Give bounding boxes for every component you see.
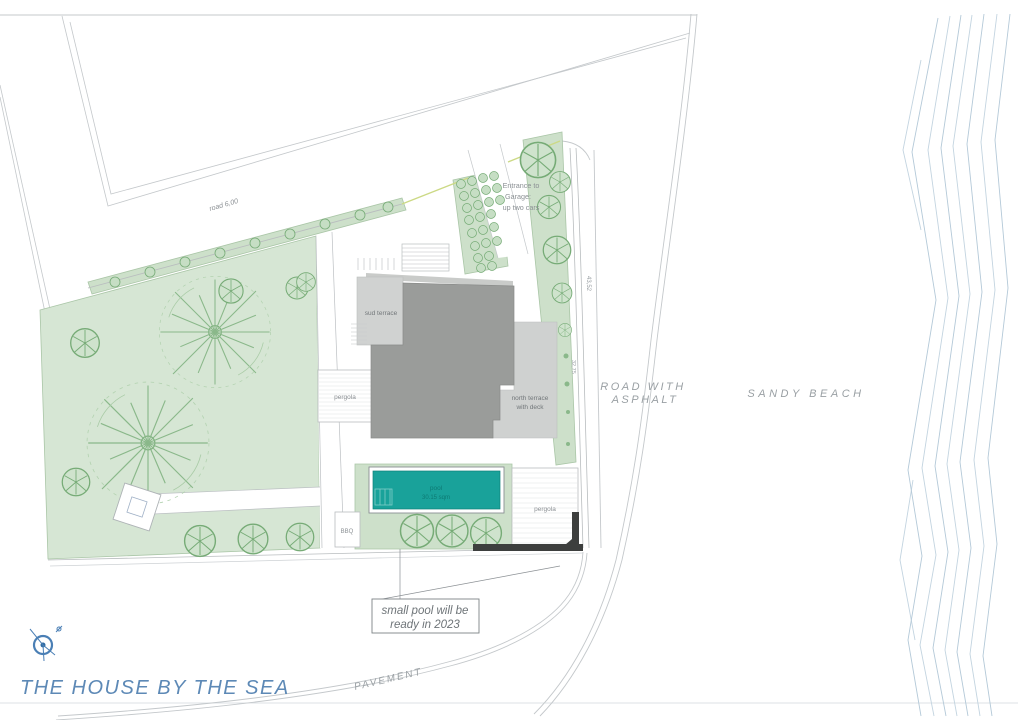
bbq-label: BBQ xyxy=(341,529,354,535)
note-line-1: small pool will be xyxy=(382,605,469,617)
road-asphalt-label-1: ROAD WITH xyxy=(600,381,685,393)
pergola-west-label: pergola xyxy=(334,394,356,401)
sud-terrace-label: sud terrace xyxy=(365,310,398,317)
note-box: small pool will be ready in 2023 xyxy=(372,549,560,633)
north-terrace-label-2: with deck xyxy=(515,404,544,411)
bbq: BBQ xyxy=(335,512,360,547)
sea-contours xyxy=(900,14,1010,716)
compass-icon xyxy=(30,626,62,661)
road-top-label: road 6,00 xyxy=(209,198,239,213)
note-line-2: ready in 2023 xyxy=(390,619,460,631)
pool: pool 30.15 sqm xyxy=(369,467,504,513)
stairs xyxy=(358,244,449,271)
pergola-east: pergola xyxy=(512,468,578,548)
north-terrace-label-1: north terrace xyxy=(512,395,549,402)
pergola-west: pergola xyxy=(318,370,372,422)
dimension-label-2: 32,75 xyxy=(570,360,576,374)
pavement-label: PAVEMENT xyxy=(353,667,423,693)
entrance-label-2: Garage: xyxy=(505,192,531,201)
entrance-label-1: Entrance to xyxy=(503,181,540,190)
road-asphalt-label-2: ASPHALT xyxy=(611,394,679,406)
left-parcel-edge xyxy=(0,85,52,322)
neighbor-parcel xyxy=(62,16,690,206)
pool-label-1: pool xyxy=(430,485,443,492)
pergola-east-label: pergola xyxy=(534,506,556,513)
dimension-label-1: 43,52 xyxy=(585,276,591,292)
page-title: THE HOUSE BY THE SEA xyxy=(20,677,290,699)
entrance-label-3: up two cars xyxy=(503,203,540,212)
site-plan: pergola sud terrace north terrace with d… xyxy=(0,0,1018,720)
sandy-beach-label: SANDY BEACH xyxy=(747,388,864,400)
house: sud terrace north terrace with deck xyxy=(351,273,557,438)
pool-label-2: 30.15 sqm xyxy=(422,495,450,501)
